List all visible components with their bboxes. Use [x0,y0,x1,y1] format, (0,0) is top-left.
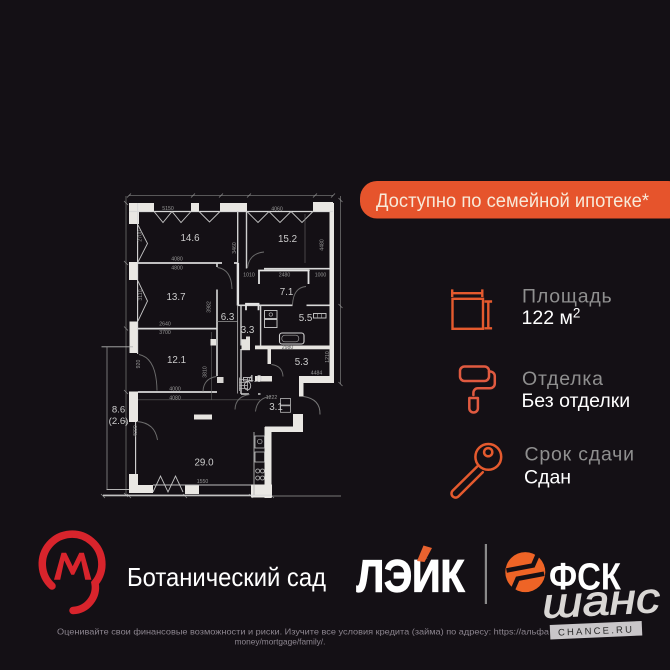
svg-text:4080: 4080 [169,396,181,402]
svg-text:3810: 3810 [203,366,209,378]
svg-text:3110: 3110 [138,289,144,300]
svg-text:3460: 3460 [232,242,238,254]
svg-text:2700: 2700 [138,230,144,242]
svg-text:money/mortgage/family/.: money/mortgage/family/. [235,637,326,647]
svg-text:122 м2: 122 м2 [522,305,581,329]
svg-text:1210: 1210 [325,351,331,363]
svg-text:2980: 2980 [282,345,294,351]
svg-text:1010: 1010 [243,273,255,279]
svg-text:Без отделки: Без отделки [522,390,631,412]
svg-text:4480: 4480 [320,239,326,251]
svg-text:29.0: 29.0 [194,458,214,469]
svg-text:1000: 1000 [315,273,327,279]
svg-text:1222: 1222 [266,395,278,401]
svg-text:Оценивайте свои финансовые воз: Оценивайте свои финансовые возможности и… [57,626,549,636]
svg-text:14.6: 14.6 [180,233,200,244]
svg-text:5.3: 5.3 [295,357,309,368]
svg-text:12.1: 12.1 [167,355,186,366]
svg-text:4.0: 4.0 [248,374,262,385]
svg-text:5.5: 5.5 [299,313,313,324]
svg-text:7.1: 7.1 [280,287,294,298]
svg-text:(2.6): (2.6) [109,416,129,427]
svg-text:4060: 4060 [271,206,283,212]
svg-text:1550: 1550 [197,479,209,485]
svg-text:Площадь: Площадь [522,286,612,308]
svg-text:Сдан: Сдан [524,466,571,488]
svg-text:2480: 2480 [279,273,291,279]
svg-text:4000: 4000 [133,425,139,437]
svg-text:3.1: 3.1 [269,402,283,413]
svg-text:4080: 4080 [171,257,183,263]
svg-text:Доступно по семейной ипотеке*: Доступно по семейной ипотеке* [376,191,650,212]
svg-text:4000: 4000 [169,387,181,393]
svg-text:Срок сдачи: Срок сдачи [525,443,635,465]
svg-text:4484: 4484 [311,370,323,376]
svg-text:Отделка: Отделка [522,368,604,390]
svg-text:3.3: 3.3 [241,325,255,336]
svg-text:13.7: 13.7 [166,292,185,303]
svg-text:5150: 5150 [162,206,174,212]
svg-text:3982: 3982 [207,301,213,313]
svg-text:шанс: шанс [541,574,661,627]
svg-text:2640: 2640 [159,321,171,327]
svg-text:8.6: 8.6 [112,405,125,416]
svg-text:15.2: 15.2 [278,234,297,245]
svg-text:4800: 4800 [171,265,183,271]
svg-text:6.3: 6.3 [221,312,235,323]
svg-text:920: 920 [136,360,142,369]
svg-text:Ботанический сад: Ботанический сад [127,562,326,592]
svg-text:3700: 3700 [159,330,171,336]
